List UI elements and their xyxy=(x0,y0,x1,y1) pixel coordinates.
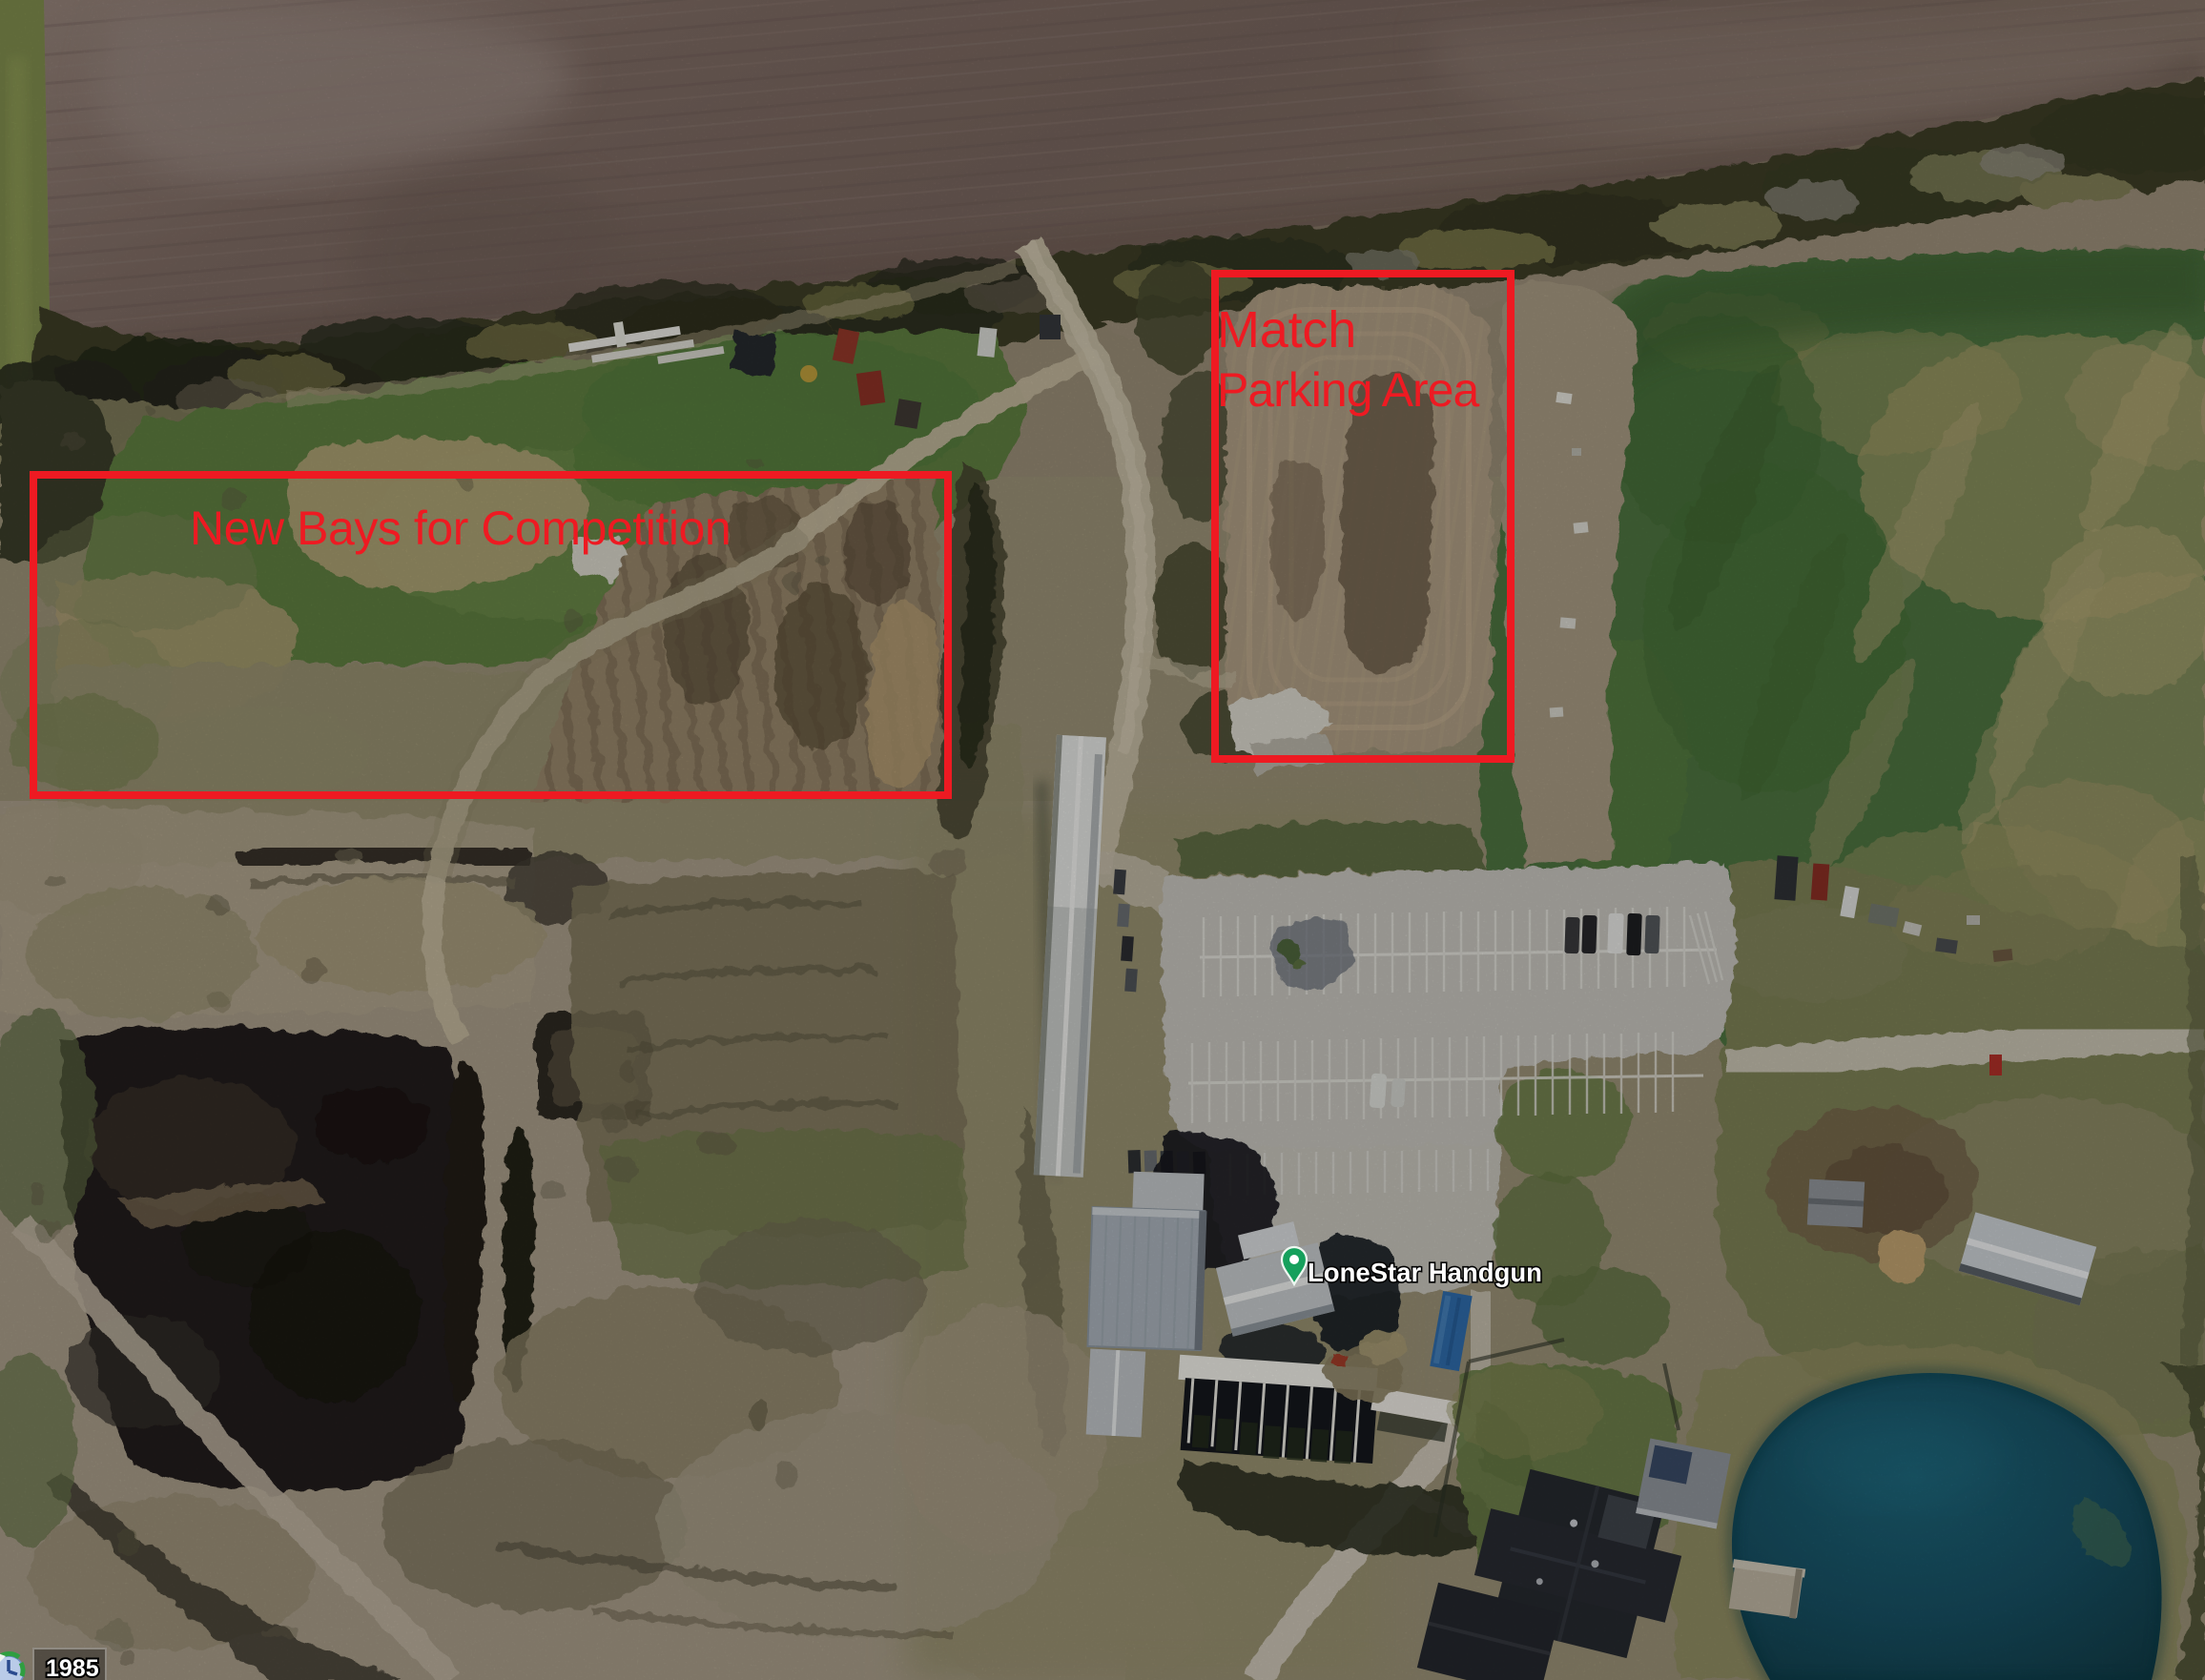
svg-text:Parking Area: Parking Area xyxy=(1217,363,1479,417)
svg-text:Match: Match xyxy=(1217,301,1356,359)
svg-text:New Bays for Competition: New Bays for Competition xyxy=(190,502,731,555)
svg-text:LoneStar Handgun: LoneStar Handgun xyxy=(1308,1258,1542,1287)
svg-text:1985: 1985 xyxy=(46,1655,99,1680)
